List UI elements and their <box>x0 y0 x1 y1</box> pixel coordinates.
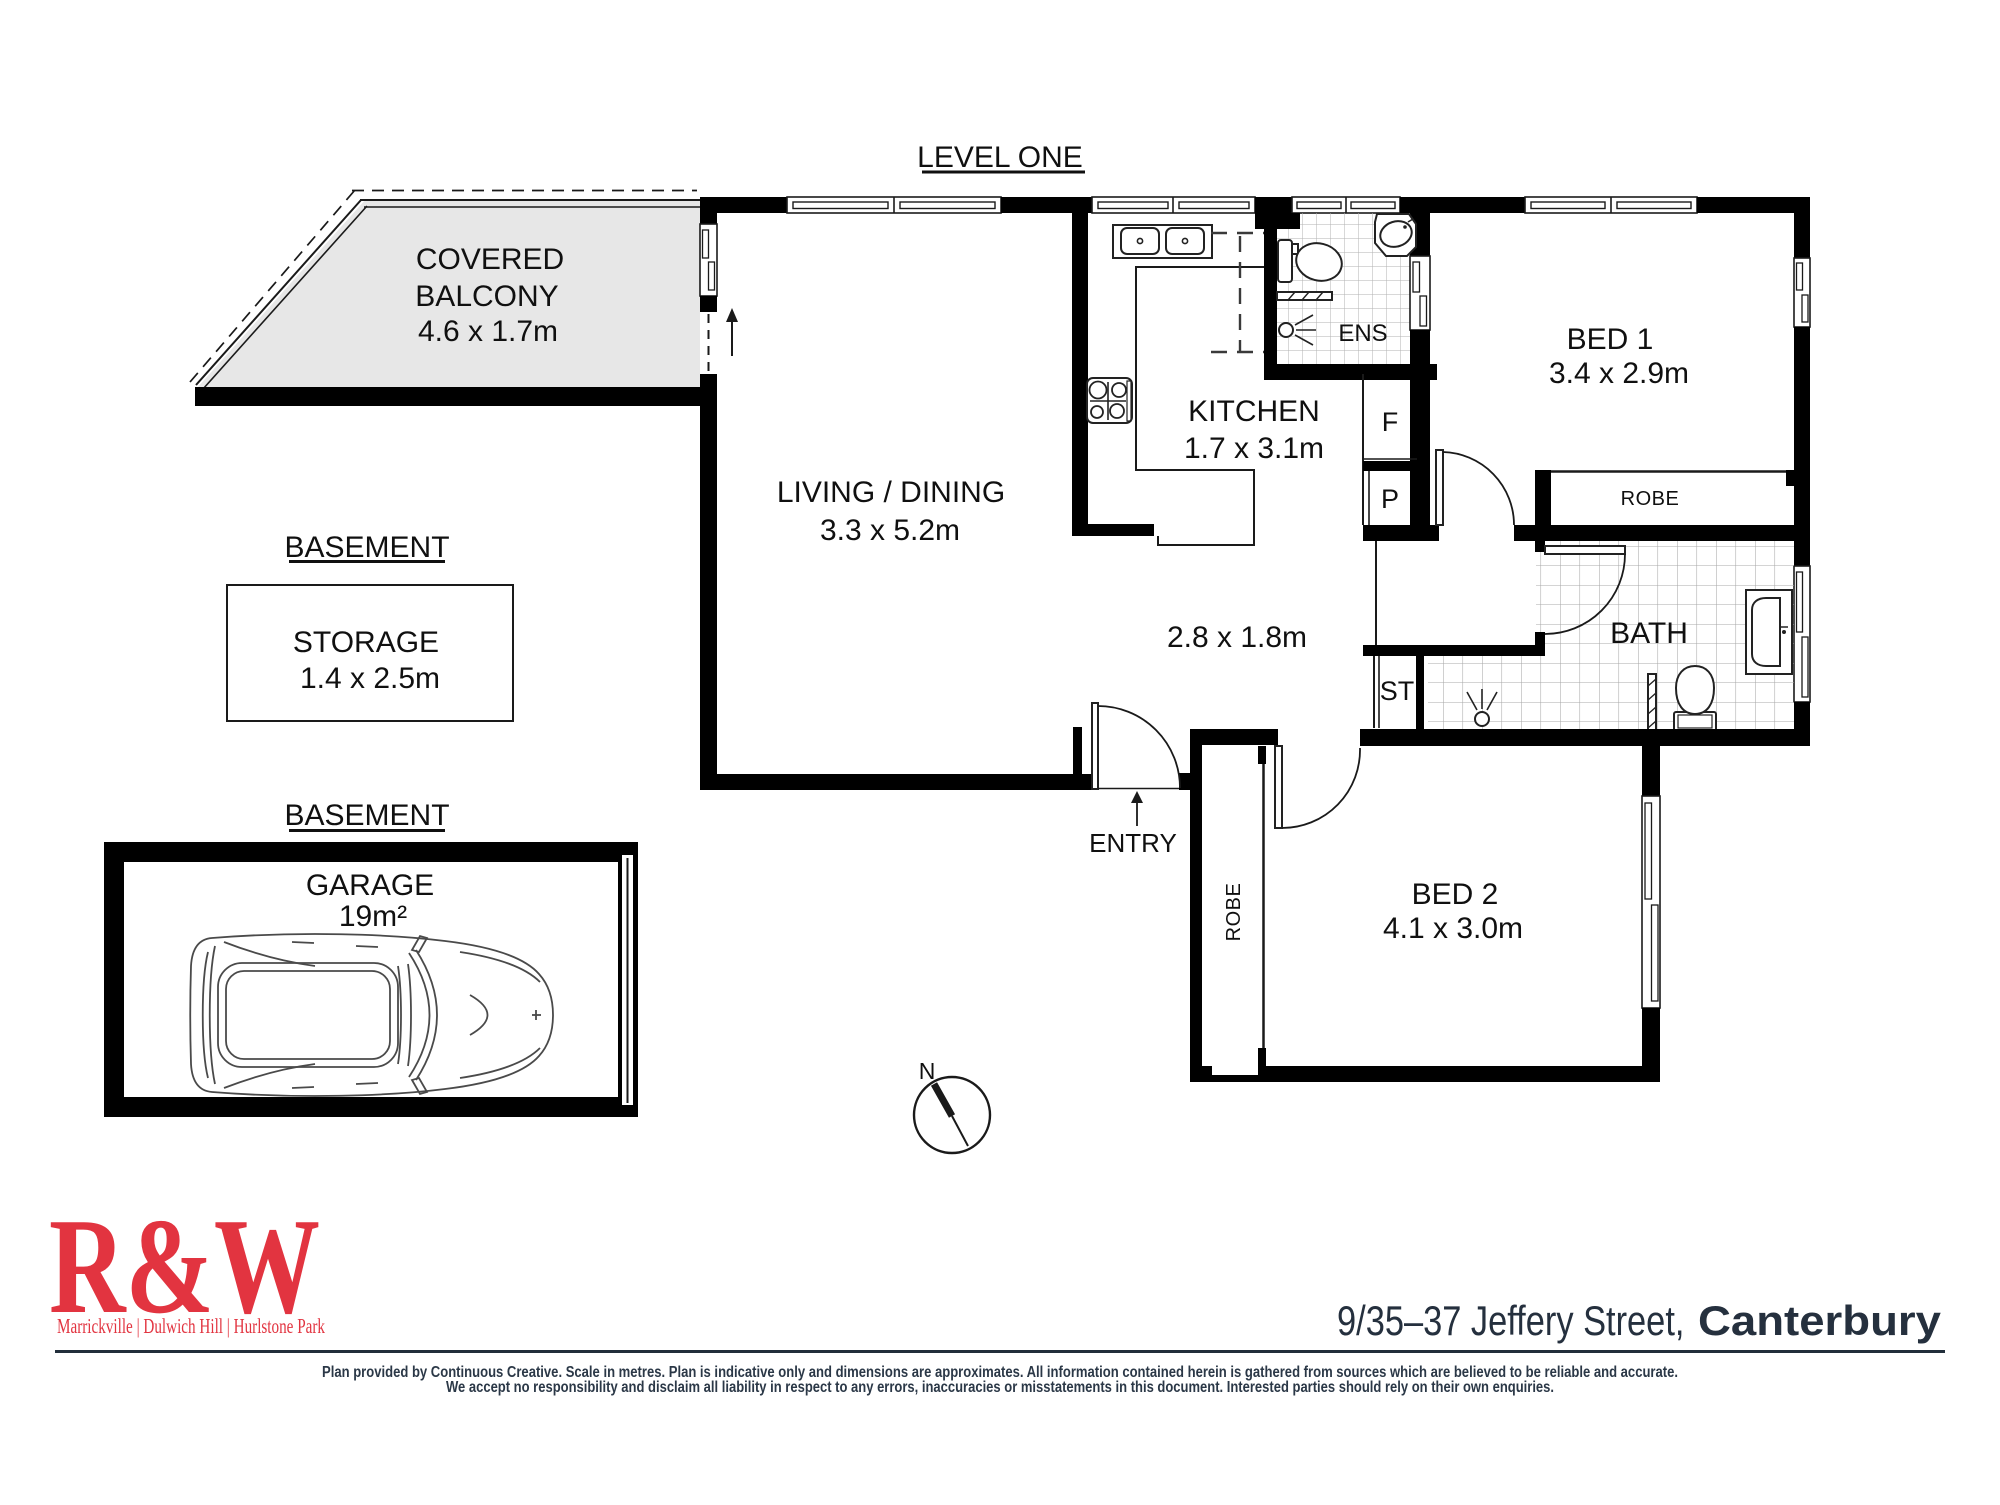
svg-text:ENS: ENS <box>1338 320 1387 347</box>
svg-text:P: P <box>1381 484 1399 514</box>
svg-text:BALCONY: BALCONY <box>415 280 558 313</box>
svg-text:Marrickville | Dulwich Hill |: Marrickville | Dulwich Hill | Hurlstone … <box>57 1314 325 1338</box>
svg-text:BATH: BATH <box>1610 617 1688 650</box>
svg-text:ROBE: ROBE <box>1621 488 1680 510</box>
svg-text:Canterbury: Canterbury <box>1698 1297 1942 1344</box>
svg-text:We accept no responsibility an: We accept no responsibility and disclaim… <box>446 1379 1554 1396</box>
svg-text:KITCHEN: KITCHEN <box>1188 395 1320 428</box>
svg-text:N: N <box>919 1058 936 1084</box>
svg-text:1.4 x 2.5m: 1.4 x 2.5m <box>300 662 440 695</box>
svg-text:F: F <box>1382 407 1399 437</box>
svg-text:2.8 x 1.8m: 2.8 x 1.8m <box>1167 621 1307 654</box>
svg-text:LEVEL ONE: LEVEL ONE <box>917 141 1083 174</box>
svg-text:1.7 x 3.1m: 1.7 x 3.1m <box>1184 432 1324 465</box>
svg-text:STORAGE: STORAGE <box>293 626 439 659</box>
svg-text:BED 1: BED 1 <box>1567 323 1654 356</box>
svg-text:ST: ST <box>1380 676 1415 706</box>
svg-text:19m²: 19m² <box>339 900 407 933</box>
svg-text:ENTRY: ENTRY <box>1089 828 1177 858</box>
svg-text:BED 2: BED 2 <box>1412 878 1499 911</box>
svg-text:LIVING / DINING: LIVING / DINING <box>777 476 1005 509</box>
svg-text:4.6 x 1.7m: 4.6 x 1.7m <box>418 315 558 348</box>
svg-text:ROBE: ROBE <box>1223 883 1245 942</box>
svg-text:COVERED: COVERED <box>416 243 564 276</box>
svg-text:3.4 x 2.9m: 3.4 x 2.9m <box>1549 357 1689 390</box>
svg-text:GARAGE: GARAGE <box>306 869 434 902</box>
svg-text:3.3 x 5.2m: 3.3 x 5.2m <box>820 514 960 547</box>
svg-text:9/35–37 Jeffery Street,: 9/35–37 Jeffery Street, <box>1337 1297 1694 1344</box>
svg-text:4.1 x 3.0m: 4.1 x 3.0m <box>1383 912 1523 945</box>
svg-text:BASEMENT: BASEMENT <box>284 799 449 832</box>
svg-text:BASEMENT: BASEMENT <box>284 531 449 564</box>
